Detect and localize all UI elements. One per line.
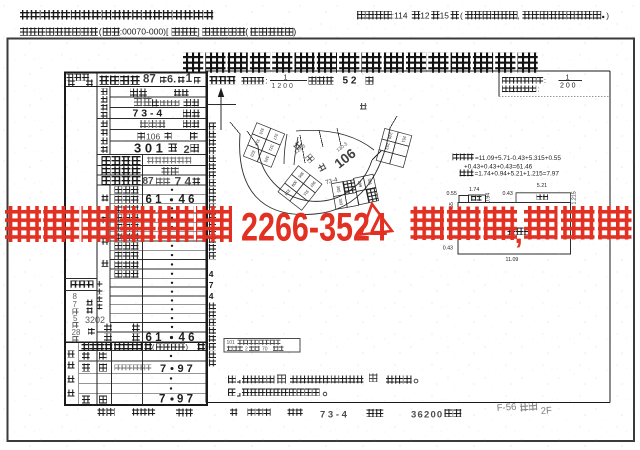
svg-text:,: , xyxy=(515,217,523,250)
svg-text:2266-3524: 2266-3524 xyxy=(241,206,388,250)
